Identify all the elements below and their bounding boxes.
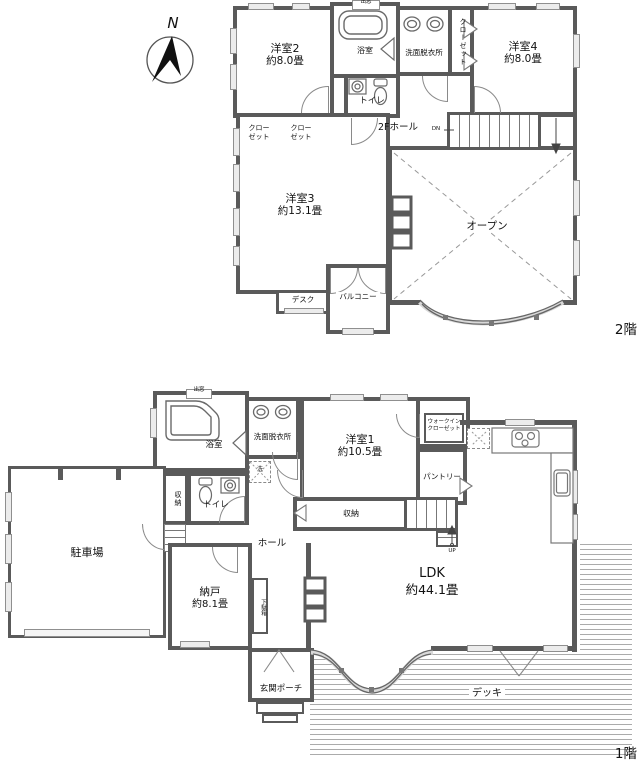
window [5,492,12,522]
label-2f-open: オープン [452,220,522,233]
label-2f-balcony: バルコニー [328,292,388,301]
label-2f-desk: デスク [280,295,326,304]
window [230,28,237,54]
label-1f-bath: 浴室 [196,440,232,450]
label-1f-toilet: トイレ [192,500,240,510]
label-1f-storage-wc: 収納 [169,486,182,512]
window [488,3,516,10]
stairs-1f [404,497,458,531]
window [573,180,580,216]
door-leaf [244,496,245,523]
door-leaf [351,118,352,145]
window [233,246,240,266]
stairs-2f [447,112,541,150]
label-1f-hall: ホール [242,538,302,550]
window [233,128,240,156]
window [505,419,535,426]
door-leaf [385,268,386,294]
wall-2f-stairs-top [539,112,577,116]
door-leaf [419,414,420,438]
door-leaf [328,86,329,113]
label-1f-storage-hall: 収納 [336,509,366,519]
compass-icon [147,36,193,83]
window [292,3,310,10]
deck-bottom [310,650,632,755]
label-2f-hall: 2Fホール [368,122,428,134]
window [150,408,157,438]
label-2f-closet-tall: クローゼット [453,16,467,68]
window [536,3,560,10]
parking-wall-stub [116,466,121,480]
label-2f-yoshitsu4: 洋室4約8.0畳 [475,40,571,66]
porch-step [262,714,298,723]
wall-2f-stairs-right [573,112,577,150]
kitchen-counter [492,428,573,543]
door-leaf [474,86,475,113]
label-2f-dn: DN [428,126,444,133]
stairs-1f-lower-run [436,531,458,547]
door-leaf [302,470,303,498]
door-leaf [237,547,238,573]
door-leaf [447,76,448,102]
wall-ldk-west [306,562,311,650]
label-2f-baywindow: 出窓 [340,0,392,6]
window [467,645,493,652]
label-2f-bath: 浴室 [348,46,382,56]
window [543,645,568,652]
wall-2f-bay-right [558,300,577,305]
window [180,641,210,648]
door-arc [422,76,448,102]
label-2f-closet-a: クローゼット [242,124,276,141]
label-1f-ldk: LDK約44.1畳 [382,566,482,597]
door-leaf [164,524,165,550]
label-1f-wic: ウォークインクローゼット [425,419,463,432]
label-2f-closet-b: クローゼット [284,124,318,141]
room-1f-senmen [245,397,300,459]
label-1f-porch: 玄関ポーチ [250,684,312,694]
window [233,164,240,192]
parking-wall-stub [58,466,63,480]
window [342,328,374,335]
label-2f-toilet: トイレ [350,96,394,106]
window [5,582,12,612]
wall-2f-bay-left [388,300,425,305]
label-1f-yoshitsu1: 洋室1約10.5畳 [312,433,408,459]
label-1f-senmen: 洗面脱衣所 [247,432,298,441]
fridge-space [467,428,490,449]
window [571,470,578,504]
door-arc [277,470,303,498]
label-2f-yoshitsu2: 洋室2約8.0畳 [240,42,330,68]
label-1f-deck: デッキ [455,688,519,700]
window [284,308,324,314]
room-2f-senmen [396,6,452,76]
floorplan-canvas: N 洋室2約8.0畳 出窓 浴室 洗面脱衣所 クローゼット 洋室4約8.0畳 ト… [0,0,639,768]
porch-step [256,702,304,714]
window [248,3,274,10]
window [330,394,364,401]
label-1f-pantry: パントリー [419,472,465,481]
label-1f-up: UP [444,548,460,555]
window [380,394,408,401]
window [571,514,578,540]
label-1f-baywindow: 出窓 [173,387,225,394]
label-1f-shoe-cabinet: 下駄箱 [255,586,266,628]
window [573,34,580,68]
window [233,208,240,236]
compass-north-label: N [158,14,188,32]
garage-opening [24,629,150,637]
room-2f-bath [330,2,400,78]
label-floor2: 2階 [587,322,637,338]
window [230,64,237,90]
label-1f-parking: 駐車場 [37,546,137,559]
room-1f-bath [153,391,249,472]
door-leaf [330,268,331,294]
window [5,534,12,564]
label-1f-washer: 洗 [253,466,267,473]
label-2f-yoshitsu3: 洋室3約13.1畳 [252,192,348,218]
window [573,240,580,276]
label-2f-senmen: 洗面脱衣所 [398,48,450,57]
label-floor1: 1階 [587,746,637,762]
label-1f-nando: 納戸約8.1畳 [162,586,258,611]
